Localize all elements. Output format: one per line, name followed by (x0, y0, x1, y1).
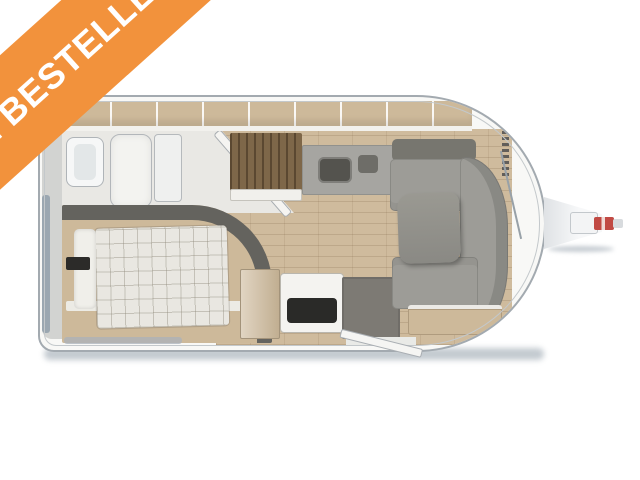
rear-wall-window (42, 195, 50, 333)
jockey-wheel (594, 217, 614, 230)
caravan-body (38, 95, 546, 352)
shower (110, 134, 152, 208)
tv-unit (66, 257, 90, 270)
kitchen-faucet (358, 155, 378, 173)
hitch-shadow (548, 246, 614, 252)
hob-burner-strip (287, 298, 337, 323)
toilet (66, 137, 104, 187)
dinette-seat-bottom (392, 257, 478, 309)
sideboard-front (230, 189, 302, 201)
kitchen-hob-unit (280, 273, 344, 333)
kitchen-cabinet (240, 269, 280, 339)
caravan-floorplan-image: TE BESTELLEN (0, 0, 640, 480)
overhead-lockers (64, 101, 472, 131)
side-wall-window (64, 337, 182, 344)
dinette-table (397, 192, 461, 264)
dinette-bench-box (408, 305, 502, 335)
kitchen-sink (318, 157, 352, 183)
hitch-tip (613, 219, 623, 228)
bed-duvet (95, 225, 230, 328)
toilet-lid (74, 144, 96, 180)
washroom-cabinet (154, 134, 182, 202)
sideboard-cabinet (230, 133, 302, 191)
